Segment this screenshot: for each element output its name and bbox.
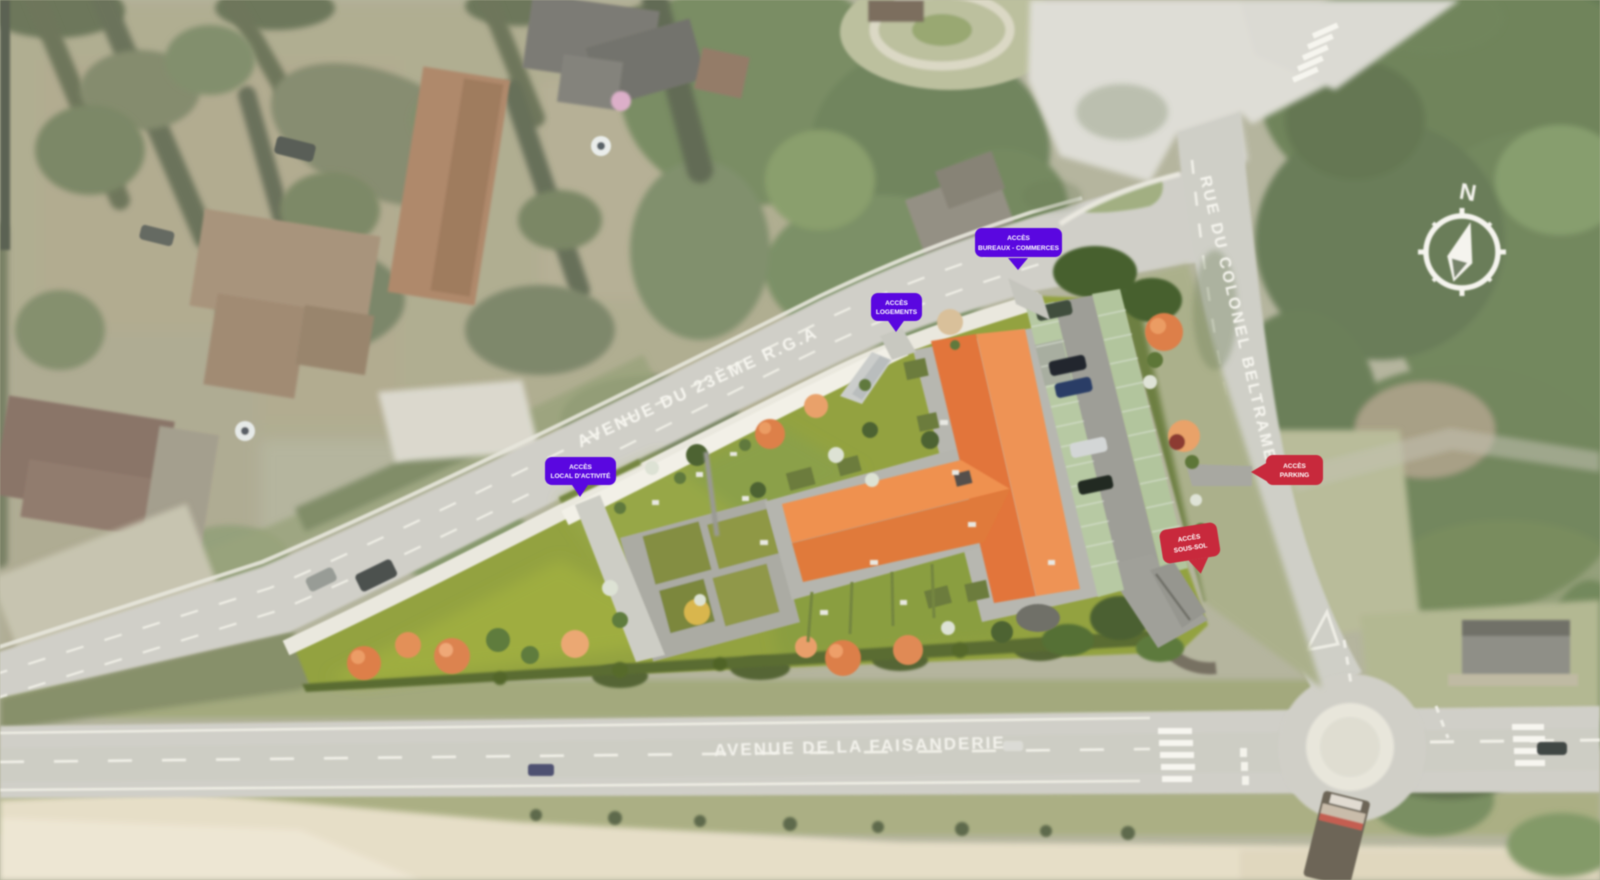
svg-text:LOCAL D'ACTIVITÉ: LOCAL D'ACTIVITÉ <box>551 471 612 480</box>
svg-text:PARKING: PARKING <box>1280 472 1310 479</box>
svg-text:ACCÈS: ACCÈS <box>1283 461 1306 470</box>
svg-text:ACCÈS: ACCÈS <box>885 298 908 307</box>
svg-text:ACCÈS: ACCÈS <box>569 462 592 471</box>
svg-text:ACCÈS: ACCÈS <box>1007 233 1030 242</box>
svg-text:LOGEMENTS: LOGEMENTS <box>876 309 918 316</box>
svg-text:BUREAUX - COMMERCES: BUREAUX - COMMERCES <box>978 245 1060 252</box>
